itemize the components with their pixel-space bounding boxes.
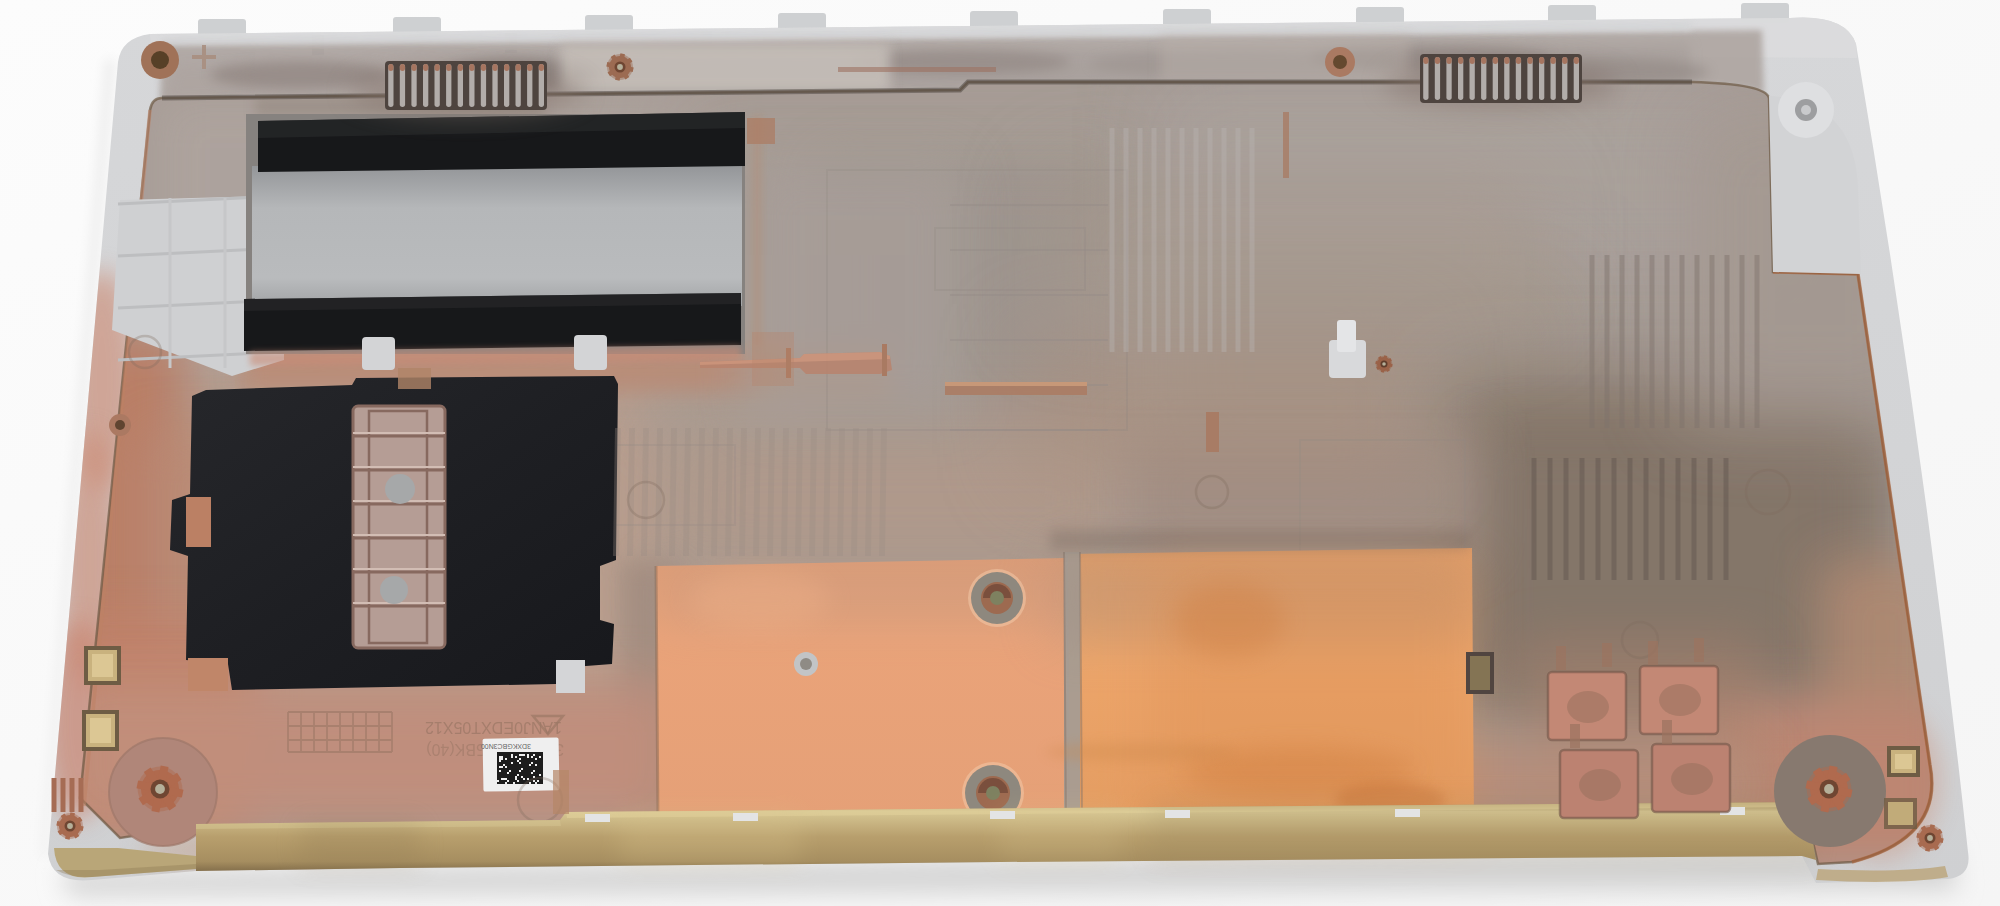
- svg-text:3DXKGBC3N00: 3DXKGBC3N00: [481, 743, 531, 750]
